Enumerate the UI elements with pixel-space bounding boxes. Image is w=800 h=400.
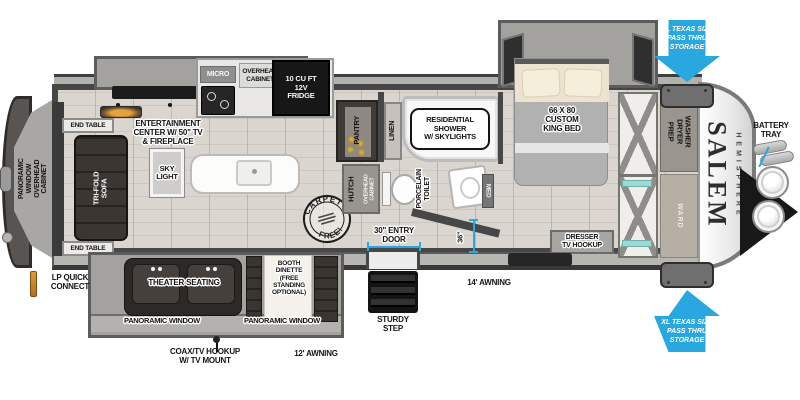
- speaker-dot-mid: [168, 103, 172, 107]
- propane-tank-2: [752, 200, 785, 233]
- door-width-label-wrap: 36": [452, 224, 470, 250]
- microwave: MICRO: [200, 66, 236, 83]
- propane-tank-1: [756, 166, 789, 199]
- pass-thru-arrow-bottom: XL TEXAS SIZE PASS THRU STORAGE: [654, 290, 720, 352]
- pass-thru-top-label: XL TEXAS SIZE PASS THRU STORAGE: [654, 25, 720, 52]
- hutch-label: HUTCH: [348, 176, 356, 201]
- door-width-dimension-line: [473, 220, 475, 252]
- wardrobe-label: WARD: [675, 198, 683, 234]
- entry-door-dim-tick-left: [367, 242, 369, 251]
- front-accent-slat-1: [622, 180, 652, 187]
- bed-blanket-fold: [515, 143, 609, 153]
- brand-main: SALEM: [702, 121, 732, 228]
- panoramic-window-left-label: PANORAMIC WINDOW: [104, 317, 220, 325]
- panoramic-window-right-label: PANORAMIC WINDOW: [226, 317, 338, 325]
- fireplace: [100, 106, 142, 118]
- rear-grab-handle: [0, 166, 12, 192]
- coax-tv-hookup-label: COAX/TV HOOKUP W/ TV MOUNT: [130, 348, 280, 366]
- tri-fold-sofa: TRI-FOLD SOFA: [74, 135, 128, 241]
- door-rivet-tl: [667, 89, 670, 92]
- door-width-tick-top: [469, 219, 478, 221]
- entry-door-opening: [366, 252, 420, 269]
- pantry-label: PANTRY: [353, 116, 361, 145]
- sturdy-step-label: STURDY STEP: [356, 316, 430, 334]
- dinette-bench-right: [314, 256, 338, 322]
- sofa-label: TRI-FOLD SOFA: [93, 163, 110, 213]
- med-cabinet: MED: [482, 174, 494, 208]
- pass-thru-bottom-label: XL TEXAS SIZE PASS THRU STORAGE: [654, 318, 720, 345]
- brand-main-wrap: SALEM: [700, 90, 734, 260]
- pass-thru-door-top: [660, 84, 714, 108]
- door-width-tick-bottom: [469, 251, 478, 253]
- theater-seating-label: THEATER SEATING: [125, 279, 243, 288]
- med-label: MED: [484, 184, 491, 198]
- exterior-tv-compartment: [508, 253, 572, 266]
- front-frame-upper: [618, 92, 658, 176]
- cupholder-1: [151, 267, 155, 271]
- shower-label-box: RESIDENTIAL SHOWER W/ SKYLIGHTS: [410, 108, 490, 150]
- step-tread-2: [371, 287, 415, 295]
- rear-cabinet-label: PANORAMIC WINDOW OVERHEAD CABINET: [17, 159, 48, 200]
- hutch-overhead-label: OVERHEAD CABINET: [364, 174, 376, 204]
- hutch-label-wrap: HUTCH: [342, 164, 362, 214]
- coax-mount-knob: [213, 336, 220, 343]
- pass-thru-door-bottom: [660, 262, 714, 288]
- toilet-tank: [382, 172, 391, 206]
- toilet-label: PORCELAIN TOILET: [416, 169, 432, 208]
- door-rivet-br: [704, 281, 707, 284]
- wardrobe: WARD: [660, 174, 698, 258]
- sturdy-step: [368, 271, 418, 313]
- awning-14-label: 14' AWNING: [444, 279, 534, 288]
- awning-12-label: 12' AWNING: [274, 350, 358, 359]
- floorplan-canvas: PANORAMIC WINDOW OVERHEAD CABINET END TA…: [0, 0, 800, 400]
- cupholder-2: [158, 267, 162, 271]
- pantry-label-wrap: PANTRY: [346, 102, 368, 158]
- step-tread-1: [371, 275, 415, 283]
- pass-thru-arrow-top: XL TEXAS SIZE PASS THRU STORAGE: [654, 20, 720, 82]
- burner-1: [207, 92, 216, 101]
- lp-connect-icon: [30, 271, 37, 297]
- fridge-label: 10 CU FT 12V FRIDGE: [286, 75, 317, 100]
- bedroom-window-right: [632, 33, 654, 87]
- washer-dryer-label: WASHER DRYER PREP: [666, 114, 691, 150]
- wall-bath-bedroom: [498, 92, 503, 164]
- micro-label: MICRO: [207, 71, 229, 79]
- door-width-label: 36": [457, 231, 465, 242]
- battery-tray-label: BATTERY TRAY: [742, 122, 800, 140]
- dresser-label: DRESSER TV HOOKUP: [562, 234, 602, 250]
- cupholder-3: [206, 267, 210, 271]
- booth-dinette-label: BOOTH DINETTE (FREE STANDING OPTIONAL): [265, 260, 313, 296]
- bed-pillow-left: [521, 68, 560, 98]
- dinette-bench-left: [246, 256, 262, 322]
- theater-seating: THEATER SEATING: [124, 258, 242, 316]
- door-rivet-tr: [704, 89, 707, 92]
- entry-door-dimension-line: [368, 246, 420, 248]
- refrigerator: 10 CU FT 12V FRIDGE: [272, 60, 330, 116]
- cupholder-4: [213, 267, 217, 271]
- rear-bumper-ball: [2, 232, 13, 243]
- entry-door-dim-tick-right: [419, 242, 421, 251]
- linen-label: LINEN: [389, 121, 397, 141]
- bed-label: 66 X 80 CUSTOM KING BED: [515, 107, 609, 134]
- step-tread-3: [371, 299, 415, 307]
- sky-light: SKY LIGHT: [150, 149, 184, 197]
- vanity-sink: [459, 176, 482, 201]
- dinette-table: BOOTH DINETTE (FREE STANDING OPTIONAL): [264, 255, 312, 325]
- entertainment-label: ENTERTAINMENT CENTER W/ 50" TV & FIREPLA…: [98, 120, 238, 147]
- bed-pillow-right: [564, 68, 603, 97]
- king-bed: 66 X 80 CUSTOM KING BED: [514, 58, 608, 186]
- entry-door-label: 30" ENTRY DOOR: [354, 227, 434, 245]
- door-rivet-bl: [667, 281, 670, 284]
- hutch-overhead-wrap: OVERHEAD CABINET: [361, 164, 379, 214]
- front-accent-slat-2: [622, 240, 652, 247]
- lp-quick-connect-label: LP QUICK CONNECT: [39, 274, 101, 292]
- burner-2: [220, 100, 229, 109]
- dresser: DRESSER TV HOOKUP: [550, 230, 614, 254]
- sky-light-label: SKY LIGHT: [156, 165, 178, 182]
- shower-label: RESIDENTIAL SHOWER W/ SKYLIGHTS: [424, 116, 476, 141]
- cooktop: [201, 86, 235, 115]
- island-faucet: [252, 169, 257, 174]
- linen-closet: LINEN: [384, 102, 402, 160]
- kitchen-island: [190, 154, 300, 194]
